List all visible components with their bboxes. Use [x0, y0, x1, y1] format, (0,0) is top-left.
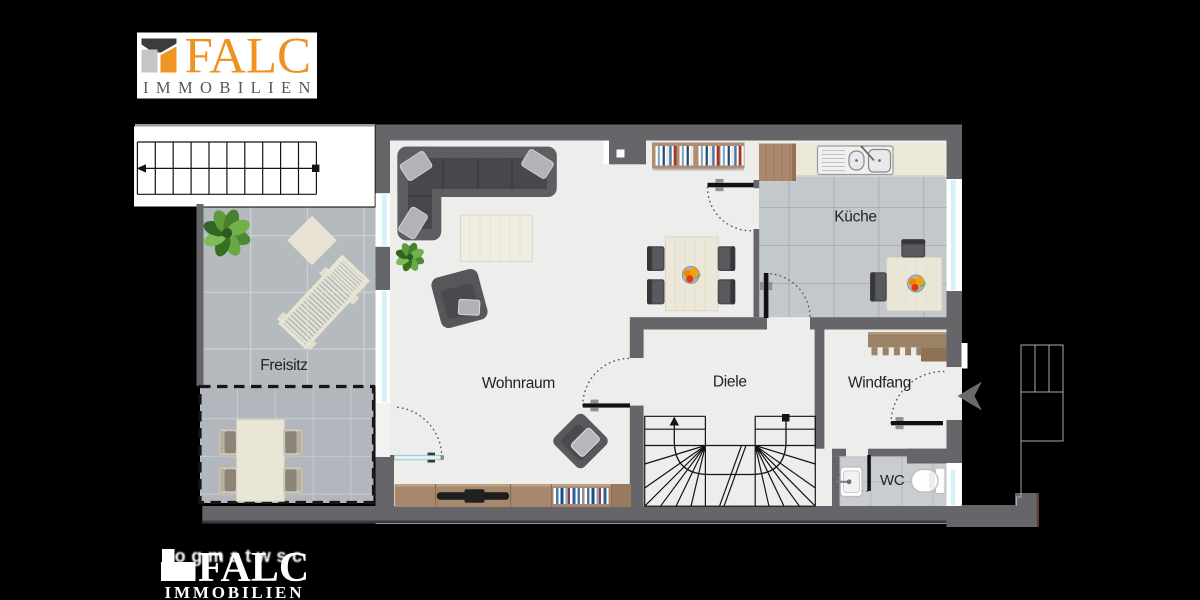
svg-text:Küche: Küche	[834, 208, 876, 225]
svg-text:Freisitz: Freisitz	[260, 357, 308, 374]
svg-text:Windfang: Windfang	[848, 375, 911, 392]
svg-text:IMMOBILIEN: IMMOBILIEN	[143, 78, 318, 97]
svg-text:WC: WC	[880, 472, 905, 489]
svg-text:Diele: Diele	[713, 373, 747, 390]
svg-text:rogmatwsc: rogmatwsc	[162, 546, 302, 566]
svg-text:Wohnraum: Wohnraum	[482, 375, 555, 392]
svg-text:IMMOBILIEN: IMMOBILIEN	[165, 583, 303, 600]
svg-text:FALC: FALC	[185, 29, 312, 85]
